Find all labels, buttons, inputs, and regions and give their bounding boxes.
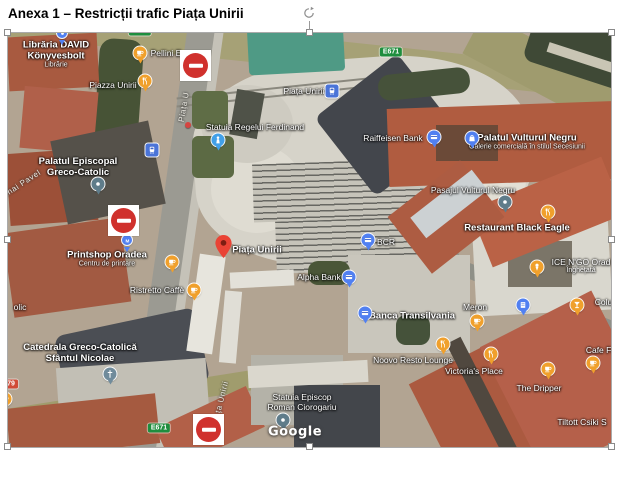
alpha-bank-label: Alpha Bank (297, 272, 340, 282)
rotate-handle-icon[interactable] (302, 6, 316, 20)
cafe-icon (166, 256, 179, 269)
palatul-episcopal-label: Palatul EpiscopalGreco-Catolic (39, 156, 118, 178)
cafe-icon (134, 47, 147, 60)
bus-stop-icon (146, 144, 159, 157)
resize-handle-bottom-left[interactable] (4, 443, 11, 450)
no-entry-sign (180, 50, 211, 81)
resize-handle-bottom-right[interactable] (608, 443, 615, 450)
pasajul-vulturul-negru-label: Pasajul Vulturul Negru (431, 185, 515, 195)
ristretto-caffe-label: Ristretto Caffè (130, 285, 184, 295)
meron-label: Meron (463, 302, 487, 312)
restaurant-icon (139, 75, 152, 88)
olic-fragment-label: olic (14, 302, 27, 312)
resize-handle-bottom-center[interactable] (306, 443, 313, 450)
dot-icon (499, 196, 512, 209)
document-page: Anexa 1 – Restricții trafic Piața Unirii… (0, 0, 619, 481)
svg-text:M: M (125, 238, 129, 243)
e671-shield-bottom: E671 (148, 424, 170, 433)
libraria-david-label: Librăria DAVIDKönyvesboltLibrărie (23, 40, 89, 71)
ice-n-go-label: ICE N'GO OradÎnghețată (552, 257, 611, 275)
bank-icon (359, 307, 372, 320)
tram-stop-icon (326, 85, 339, 98)
e671-shield-top-right: E671 (380, 48, 402, 57)
red-dot (185, 122, 191, 128)
hotel-pin-icon (517, 299, 530, 312)
mihai-pavel-street-label: Mihai Pavel (8, 168, 43, 202)
piata-u-street-label: Piața U (177, 91, 192, 123)
red-map-pin (215, 235, 232, 263)
dot-icon (92, 178, 105, 191)
victorias-place-label: Victoria's Place (445, 366, 503, 376)
raiffeisen-bank-label: Raiffeisen Bank (363, 133, 422, 143)
mall-icon (466, 132, 479, 145)
resize-handle-top-left[interactable] (4, 29, 11, 36)
colum-label: Colum (595, 297, 611, 307)
google-watermark: Google (268, 425, 322, 440)
statuia-ferdinand-label: Statuia Regelui Ferdinand (206, 122, 304, 132)
document-title: Anexa 1 – Restricții trafic Piața Unirii (8, 6, 244, 21)
cocktail-icon (571, 299, 584, 312)
resize-handle-middle-left[interactable] (4, 236, 11, 243)
dn79-shield: 79 (8, 380, 18, 389)
monument-icon (212, 134, 225, 147)
palatul-vulturul-negru-label: Palatul Vulturul NegruGalerie comercială… (469, 132, 585, 151)
cafe-icon (188, 284, 201, 297)
restaurant-icon (437, 338, 450, 351)
pellini-label: Pellini E (151, 48, 182, 58)
church-icon (104, 368, 117, 381)
no-entry-sign (193, 414, 224, 445)
cafe-icon (587, 357, 600, 370)
cafe-icon (8, 393, 12, 406)
noovo-resto-lounge-label: Noovo Resto Lounge (373, 355, 453, 365)
the-dripper-label: The Dripper (517, 383, 562, 393)
restaurant-icon (542, 206, 555, 219)
icecream-icon (531, 261, 544, 274)
map-overlay: Librăria DAVIDKönyvesboltLibrăriePellini… (8, 33, 611, 447)
bank-icon (428, 131, 441, 144)
catedrala-label: Catedrala Greco-CatolicăSfântul Nicolae (23, 342, 137, 364)
bcr-label: BCR (377, 237, 395, 247)
ta-unirii-street-label: ța Unirii (213, 380, 230, 414)
statuia-episcop-label: Statuia EpiscopRoman Ciorogariu (268, 392, 337, 412)
resize-handle-middle-right[interactable] (608, 236, 615, 243)
cafe-fr-label: Cafe Fr (586, 345, 611, 355)
resize-handle-top-right[interactable] (608, 29, 615, 36)
bank-icon (362, 234, 375, 247)
piata-unirii-transit-label: Piața Unirii (283, 86, 324, 96)
print-pin-icon: M (122, 235, 132, 245)
printshop-oradea-label: Printshop OradeaCentru de printare (67, 249, 147, 268)
cafe-icon (542, 363, 555, 376)
restaurant-icon (485, 348, 498, 361)
piata-unirii-pin-label: Piața Unirii (232, 244, 282, 255)
rotate-handle-stem (309, 21, 310, 30)
resize-handle-top-center[interactable] (306, 29, 313, 36)
tiltott-csiki-label: Tiltott Csiki S (557, 417, 606, 427)
bank-icon (343, 271, 356, 284)
cafe-icon (471, 315, 484, 328)
e671-shield-top-left: E671 (129, 33, 151, 36)
blue-pin-partial-icon (57, 33, 67, 38)
map-image[interactable]: Librăria DAVIDKönyvesboltLibrăriePellini… (8, 33, 611, 447)
banca-transilvania-label: Banca Transilvania (369, 310, 455, 321)
piazza-unirii-label: Piazza Unirii (89, 80, 136, 90)
restaurant-black-eagle-label: Restaurant Black Eagle (464, 222, 570, 233)
no-entry-sign (108, 205, 139, 236)
